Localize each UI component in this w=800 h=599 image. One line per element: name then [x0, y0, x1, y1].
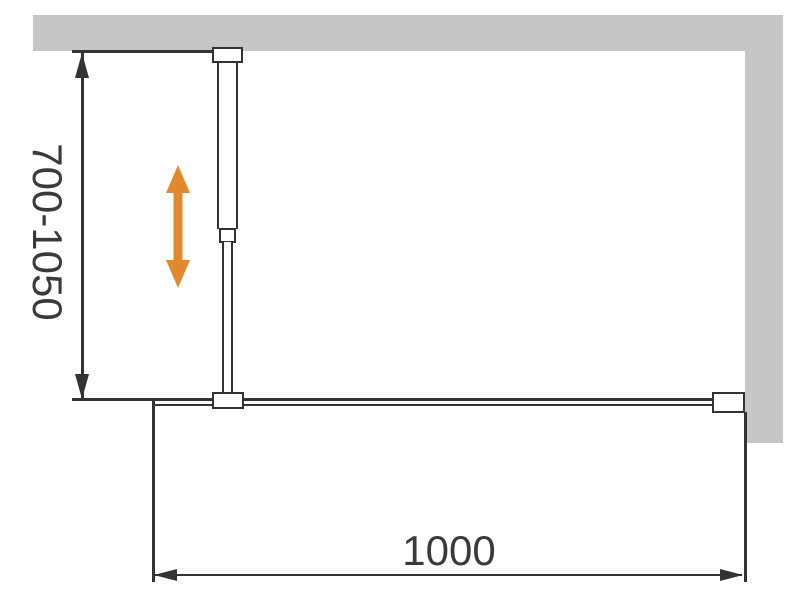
glass-wall-profile — [712, 392, 745, 413]
top-extension-line — [72, 50, 212, 53]
arrow-right-icon — [720, 569, 743, 581]
horizontal-dimension-label: 1000 — [402, 530, 495, 572]
support-bar-adjust-collar — [219, 228, 236, 243]
arrow-up-icon — [75, 53, 89, 78]
support-bar-inner-rod — [222, 242, 233, 393]
left-extension-line — [152, 399, 155, 582]
dimension-diagram: 700-1050 1000 — [0, 0, 800, 599]
support-bar-outer-tube — [217, 61, 238, 229]
adjustable-height-arrow-icon — [164, 165, 192, 288]
support-bar-glass-clamp — [212, 392, 244, 409]
glass-panel-top-edge — [72, 398, 712, 401]
vertical-dimension-label: 700-1050 — [26, 143, 68, 321]
right-wall — [745, 15, 783, 443]
right-extension-line — [744, 412, 747, 582]
arrow-down-icon — [75, 374, 89, 399]
arrow-left-icon — [154, 569, 177, 581]
horizontal-dimension-line — [155, 574, 742, 576]
support-bar-wall-bracket — [212, 47, 243, 63]
vertical-dimension-line — [81, 53, 84, 399]
top-wall — [33, 15, 783, 51]
